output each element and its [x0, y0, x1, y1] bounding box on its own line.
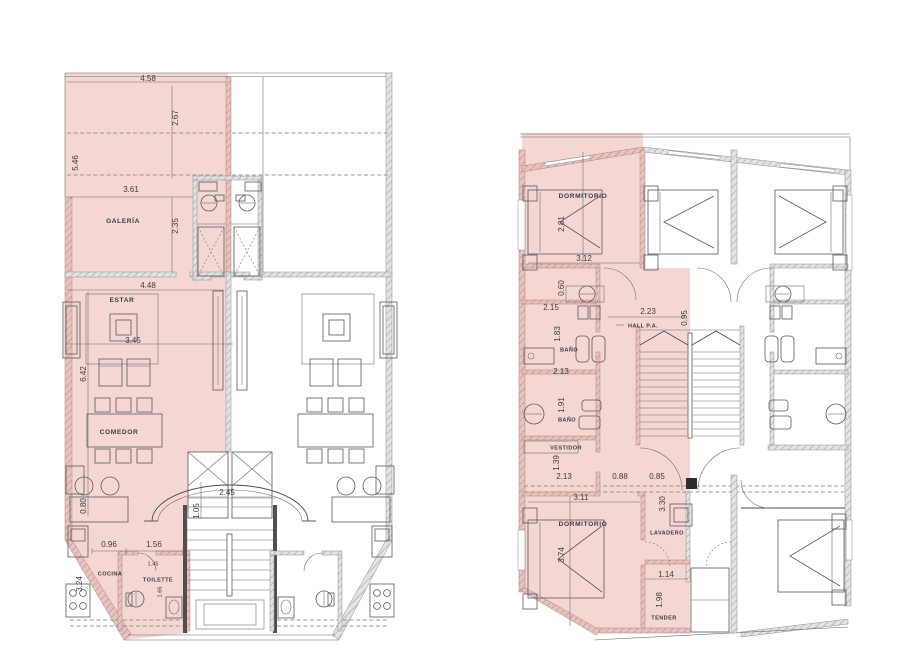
room-label-hall: HALL P.A. [628, 323, 658, 329]
toilette-right-unit [270, 551, 342, 631]
dim-label: 0.88 [612, 472, 628, 481]
room-label-estar: ESTAR [110, 297, 135, 304]
room-label-comedor: COMEDOR [100, 429, 139, 436]
dim-label: 0.60 [557, 280, 566, 296]
dim-label: 1.83 [553, 326, 562, 342]
party-wall [226, 77, 263, 452]
dim-label: 0.95 [680, 310, 689, 326]
room-label-dormitorio-2: DORMITORIO [559, 521, 608, 528]
unit-highlight-overlay [522, 133, 690, 633]
room-label-banio-2: BAÑO [558, 416, 576, 423]
room-label-galeria: GALERÍA [106, 216, 140, 225]
dim-label: 2.81 [557, 216, 566, 232]
dim-label: 3.11 [574, 493, 590, 502]
dim-label: 5.46 [71, 155, 80, 171]
dim-label: 1.66 [157, 587, 163, 598]
dim-label: 2.13 [553, 367, 569, 376]
dim-label: 1.39 [552, 455, 561, 471]
dim-label: 6.42 [79, 366, 88, 382]
interior-walls-right-unit [731, 150, 848, 633]
wc-icon [236, 182, 261, 211]
room-label-cocina: COCINA [98, 571, 122, 577]
dim-label: 3.12 [576, 254, 592, 263]
floor-plan-right: DORMITORIO 2.81 3.12 0.60 2.15 1.83 2.23… [515, 126, 863, 646]
living-furniture-right-unit [237, 291, 397, 463]
room-label-tender: TENDER [651, 615, 676, 621]
bed-dorm2-right-unit [778, 514, 846, 605]
room-label-toilette: TOILETTE [143, 577, 173, 583]
dim-label: 2.13 [556, 472, 572, 481]
dim-label: 1.14 [658, 570, 674, 579]
dim-label: 1.45 [148, 561, 159, 567]
dim-label: 2.67 [171, 110, 180, 126]
shower-icon [234, 227, 260, 276]
bed-mid-right-unit [644, 186, 718, 270]
dim-label: 0.85 [649, 472, 665, 481]
dim-label: 2.23 [640, 307, 656, 316]
dim-label: 1.05 [192, 503, 201, 519]
dim-label: 1.98 [655, 592, 664, 608]
floor-plan-left: 4.58 2.67 5.46 3.61 2.35 GALERÍA 4.48 ES… [58, 66, 403, 651]
canvas: 4.58 2.67 5.46 3.61 2.35 GALERÍA 4.48 ES… [0, 0, 903, 670]
dim-label: 4.58 [140, 74, 156, 83]
stair-treads [187, 530, 273, 629]
dim-label: 3.61 [123, 185, 139, 194]
dim-label: 2.45 [219, 488, 235, 497]
dim-label: 3.30 [658, 496, 667, 512]
dim-label: 0.96 [101, 540, 117, 549]
room-label-vestidor: VESTIDOR [550, 445, 582, 451]
room-label-banio-1: BAÑO [560, 346, 578, 353]
room-label-dormitorio-1: DORMITORIO [559, 193, 608, 200]
dim-label: 3.45 [125, 336, 141, 345]
room-label-lavadero: LAVADERO [650, 530, 684, 536]
dim-label: 1.91 [557, 397, 566, 413]
dim-label: 0.80 [79, 498, 88, 514]
dim-label: 1.56 [146, 540, 162, 549]
bed-right-right-unit [775, 186, 847, 270]
dim-label: 2.15 [543, 303, 559, 312]
dim-label: 3.24 [75, 576, 84, 592]
electrical-box [686, 478, 697, 489]
cooktop-icon [370, 584, 394, 617]
dim-label: 4.48 [140, 281, 156, 290]
bathrooms-right-unit [765, 286, 846, 429]
dim-label: 3.74 [557, 547, 566, 563]
dim-label: 2.35 [171, 218, 180, 234]
